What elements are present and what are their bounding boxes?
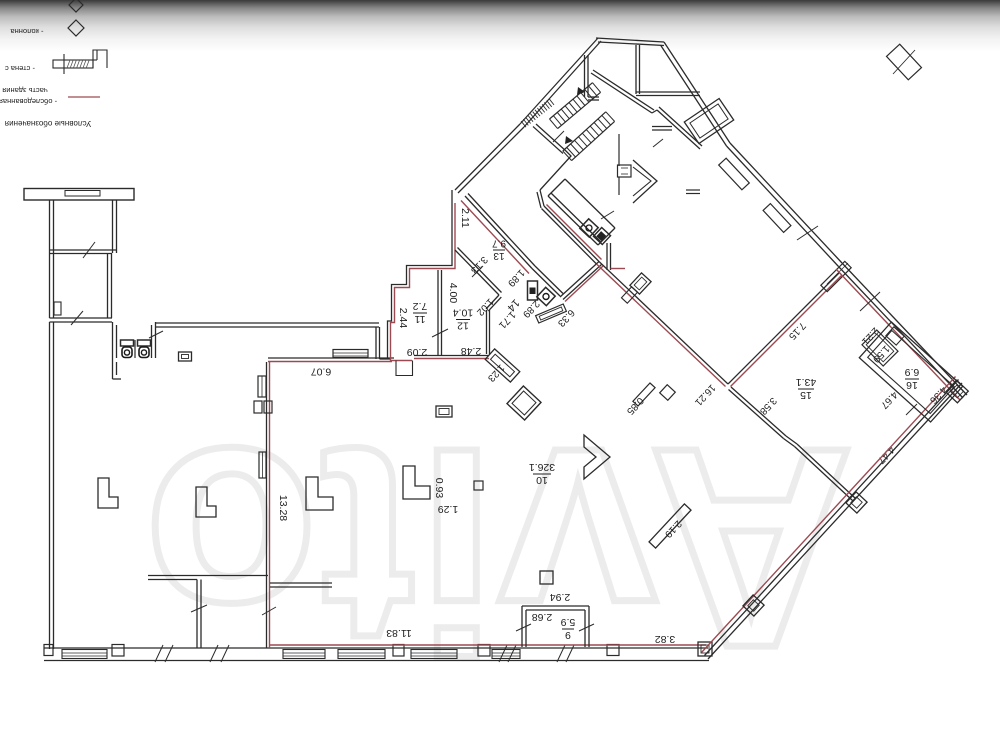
svg-text:часть здания: часть здания [2, 86, 47, 95]
svg-text:2.11: 2.11 [459, 208, 471, 228]
svg-text:3.82: 3.82 [655, 633, 676, 645]
svg-text:5.9: 5.9 [561, 616, 576, 628]
svg-text:0.93: 0.93 [433, 478, 445, 499]
svg-text:13: 13 [493, 250, 505, 261]
svg-text:6.9: 6.9 [905, 366, 920, 378]
svg-text:2.48: 2.48 [461, 345, 482, 357]
svg-text:11: 11 [414, 313, 425, 325]
svg-text:16: 16 [906, 379, 918, 391]
svg-text:9: 9 [565, 629, 571, 641]
svg-text:10.4: 10.4 [453, 307, 474, 319]
svg-text:13.28: 13.28 [277, 495, 289, 521]
svg-text:2.94: 2.94 [550, 591, 571, 603]
svg-text:6.07: 6.07 [311, 366, 332, 378]
svg-text:- обследованная: - обследованная [0, 97, 57, 106]
svg-text:15: 15 [800, 389, 812, 401]
svg-text:Условные обозначения: Условные обозначения [5, 119, 91, 128]
svg-text:- стена с: - стена с [5, 64, 35, 73]
svg-text:2.68: 2.68 [532, 611, 553, 623]
svg-text:1.29: 1.29 [438, 503, 459, 515]
svg-text:10: 10 [536, 474, 548, 486]
svg-text:Avito: Avito [142, 389, 854, 707]
svg-text:43.1: 43.1 [796, 376, 817, 388]
svg-text:326.1: 326.1 [529, 461, 555, 473]
svg-text:2.44: 2.44 [397, 308, 409, 329]
svg-text:- колонна: - колонна [10, 27, 44, 36]
svg-text:12: 12 [457, 320, 469, 332]
svg-text:2.09: 2.09 [407, 346, 428, 358]
svg-text:4.00: 4.00 [447, 283, 459, 304]
svg-text:9.7: 9.7 [492, 238, 506, 249]
svg-text:7.2: 7.2 [413, 300, 428, 312]
svg-text:11.83: 11.83 [386, 627, 412, 639]
